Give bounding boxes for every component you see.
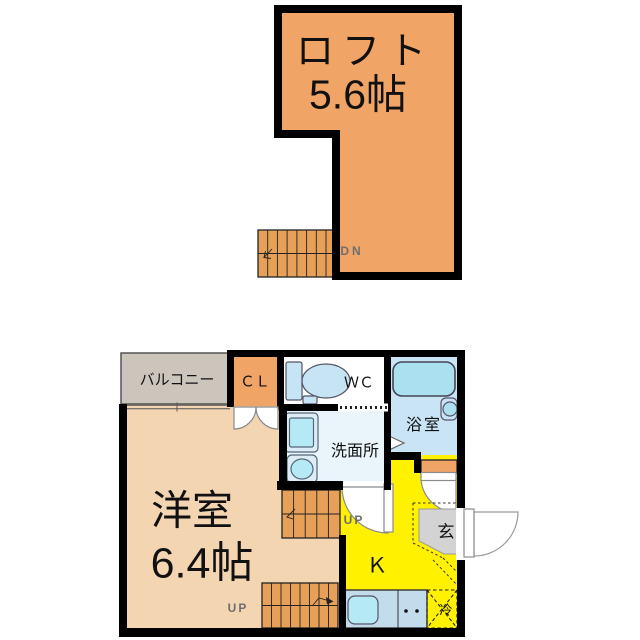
kitchen-counter	[344, 590, 427, 628]
accordion-door	[338, 404, 388, 412]
loft-room-label: ロフト	[296, 33, 434, 71]
loft-stairs	[258, 230, 336, 277]
balcony-label: バルコニー	[140, 373, 215, 388]
sink-icon	[348, 596, 378, 624]
stairs-up-mid-label: UP	[344, 514, 365, 526]
wc-label: ＷＣ	[344, 376, 374, 391]
floor-plan: ロフト 5.6帖 DN バルコニー ＣＬ ＷＣ 浴室 洗面所 洋室 6.4帖 Ｋ…	[0, 0, 640, 640]
western-room-label: 洋室	[151, 491, 233, 532]
stairs-mid-flight	[282, 490, 340, 538]
loft-size-label: 5.6帖	[309, 75, 407, 116]
washing-machine-icon	[285, 413, 318, 452]
stairs-up-low-label: UP	[228, 602, 249, 614]
burner-dot	[415, 609, 419, 613]
bathroom-label: 浴室	[406, 418, 442, 434]
entrance-label: 玄	[438, 524, 455, 541]
bath-sink-icon	[441, 398, 457, 420]
stairs-dn-label: DN	[340, 245, 363, 257]
entrance-step	[421, 460, 457, 473]
kitchen-label: Ｋ	[367, 556, 388, 577]
washroom-label: 洗面所	[331, 444, 379, 460]
front-door	[456, 508, 518, 560]
closet-label: ＣＬ	[240, 375, 270, 390]
western-room-size-label: 6.4帖	[151, 543, 254, 586]
burner-dot	[404, 609, 408, 613]
refrigerator-label: 冷	[439, 604, 452, 617]
stairs-low-flight	[262, 583, 338, 628]
bathtub-icon	[393, 362, 455, 396]
washbasin-icon	[287, 455, 317, 483]
